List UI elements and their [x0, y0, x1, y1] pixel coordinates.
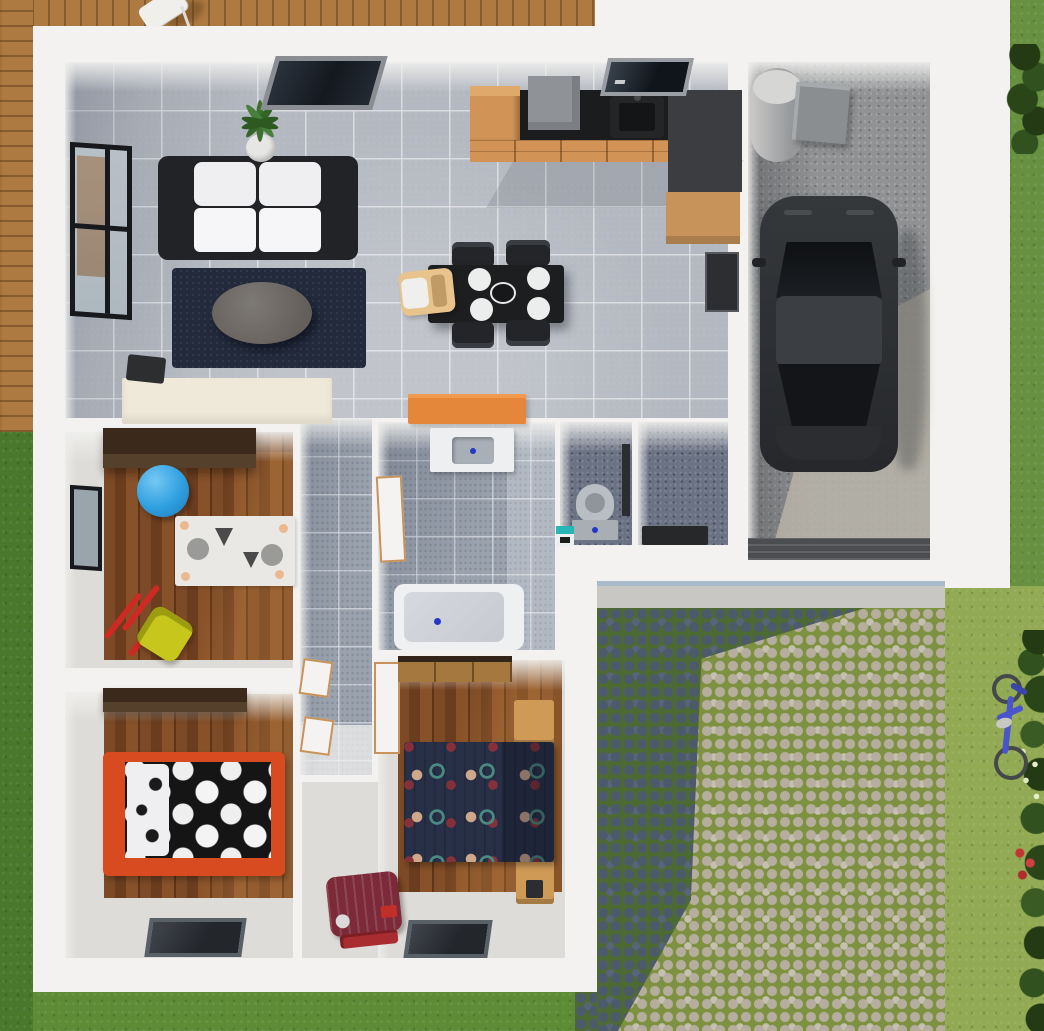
center-bowl	[490, 282, 516, 304]
sink-basin	[619, 103, 655, 131]
car-mirror-left	[752, 258, 766, 267]
basin-drain	[470, 448, 476, 454]
plate	[470, 298, 493, 321]
rug-dot	[180, 521, 189, 530]
house-top-wall-face	[595, 0, 1010, 30]
kitchen-side-counter	[668, 90, 742, 192]
bathtub-drain	[434, 618, 441, 625]
suitcase-latch	[380, 905, 397, 919]
car	[760, 196, 898, 472]
wardrobe-front	[103, 702, 247, 712]
high-chair-seat-line	[430, 274, 447, 307]
cobblestone-extension	[575, 992, 597, 1031]
hallway-door-right	[374, 662, 400, 754]
cobblestone-driveway	[597, 608, 945, 1031]
bathtub	[394, 584, 524, 650]
cooker-hood	[528, 76, 580, 130]
rug-triangle	[215, 528, 233, 546]
car-rear-window	[778, 364, 880, 428]
sidewalk-band	[597, 586, 945, 608]
bedroom1-bottom-window	[144, 918, 246, 957]
bed1-pillow	[127, 764, 169, 856]
kitchen-side-cabinet-wood	[666, 192, 740, 244]
fridge-cabinet	[470, 86, 520, 142]
coffee-table	[212, 282, 312, 344]
sofa-seat-cushion-right	[259, 208, 321, 252]
wardrobe-front	[103, 454, 256, 468]
kitchen-wall-panel	[705, 252, 739, 312]
plate	[468, 268, 491, 291]
floorplan-render	[0, 0, 1044, 1031]
wc-wall-strip	[622, 444, 630, 516]
orange-sideboard	[408, 394, 526, 424]
kitchen-top-window	[600, 58, 694, 96]
plate	[527, 267, 550, 290]
car-daylight-strip	[846, 210, 874, 215]
storage-box	[792, 82, 851, 144]
sofa-seat-cushion-left	[194, 208, 256, 252]
vanity-sink	[430, 428, 514, 472]
high-chair-tray	[401, 277, 430, 310]
wood-deck-top	[0, 0, 597, 28]
red-flowers	[1012, 845, 1038, 885]
bed2-fold-shadow	[502, 742, 554, 862]
living-left-window	[70, 142, 132, 320]
bicycle-wheel-rear	[994, 746, 1028, 780]
bedroom1-bed	[103, 752, 285, 876]
tv-sideboard	[122, 378, 332, 424]
window-handle	[615, 80, 626, 84]
lawn-left-strip	[0, 428, 33, 1031]
zebra-play-rug	[175, 516, 295, 586]
rug-triangle	[243, 552, 259, 568]
garage-door-strip	[748, 538, 930, 560]
car-windshield	[776, 242, 882, 298]
nursery-left-window	[70, 485, 102, 571]
rug-dot	[275, 570, 284, 579]
rug-dot	[279, 524, 288, 533]
car-trunk	[776, 426, 882, 460]
nightstand-item	[526, 880, 543, 898]
hallway-door-left-2	[300, 716, 335, 756]
rug-zebra-head	[261, 544, 283, 566]
bedroom2-wardrobe	[398, 656, 512, 682]
bathroom-door	[376, 475, 406, 562]
hallway-door-left-1	[299, 658, 334, 698]
window-glass-reflection	[77, 155, 107, 277]
car-roof	[776, 296, 882, 366]
bathtub-inner	[404, 592, 504, 642]
speaker	[126, 354, 167, 384]
cylinder-top-cap	[753, 70, 801, 104]
suitcase-wheel	[335, 914, 350, 929]
sofa	[158, 156, 358, 260]
toilet-bowl-inner	[585, 493, 605, 513]
hedge-top-right	[996, 44, 1044, 154]
car-mirror-right	[892, 258, 906, 267]
plate	[527, 297, 550, 320]
nightstand-bottom	[516, 856, 554, 904]
gym-ball	[137, 465, 189, 517]
sofa-back-cushion-right	[259, 162, 321, 206]
cobblestone-sunlit-area	[597, 608, 945, 1031]
bedroom2-bottom-window	[403, 920, 492, 958]
kitchen-drawer-fronts	[470, 140, 668, 162]
sofa-back-cushion-left	[194, 162, 256, 206]
rug-zebra-head	[187, 538, 209, 560]
bedroom1-wardrobe	[103, 688, 247, 712]
toilet-flush-button	[592, 527, 598, 533]
car-daylight-strip	[784, 210, 812, 215]
suitcase	[325, 870, 403, 937]
bin-slot	[560, 537, 570, 543]
toilet	[572, 484, 618, 540]
wood-deck-left	[0, 0, 33, 432]
wc-waste-bin	[556, 526, 574, 546]
rug-dot	[181, 572, 190, 581]
bicycle	[988, 672, 1032, 802]
nightstand-top	[514, 700, 554, 745]
dining-chair	[506, 320, 550, 346]
nursery-wardrobe	[103, 428, 256, 468]
living-skylight-window	[260, 56, 387, 110]
high-chair	[398, 267, 456, 316]
bin-lid	[556, 526, 574, 534]
dining-chair	[452, 322, 494, 348]
entry-doormat	[642, 526, 708, 545]
dining-chair	[506, 240, 550, 266]
kitchen-sink	[610, 96, 664, 138]
bedroom2-bed	[404, 742, 554, 862]
window-mullion	[105, 149, 110, 313]
